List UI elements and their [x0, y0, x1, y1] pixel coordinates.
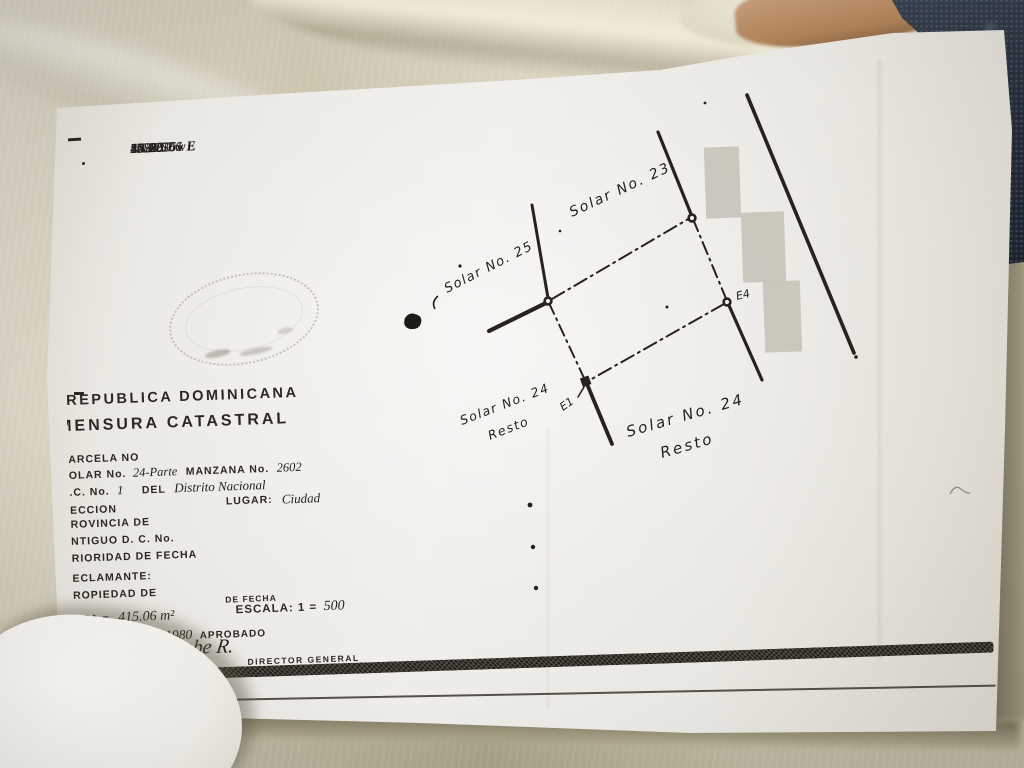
parcel-side-nw — [552, 218, 690, 299]
parcel-side-se — [590, 304, 724, 380]
label-resto-right: Resto — [658, 429, 716, 461]
escala-value: 500 — [323, 598, 345, 615]
lugar-label: LUGAR: — [226, 494, 273, 508]
redaction-block — [704, 146, 741, 218]
label-solar-24-right: Solar No. 24 — [624, 390, 746, 441]
dc-label: .C. No. — [69, 486, 110, 499]
label-e4: E4 — [735, 287, 752, 303]
faint-squiggle-mark — [950, 487, 970, 494]
label-solar-23: Solar No. 23 — [567, 160, 673, 221]
station-marker-e1 — [580, 376, 592, 388]
photo-of-survey-document: 1- N 24.56w 15.00 m N 63.06 E 28.22 " S … — [0, 0, 1024, 768]
parcel-side-ne — [693, 219, 727, 301]
dc-value: 1 — [117, 483, 124, 497]
redaction-block — [763, 280, 802, 352]
street-line-w-lower — [587, 384, 612, 444]
del-value: Distrito Nacional — [174, 477, 266, 495]
redaction-block — [741, 211, 786, 282]
lugar-value: Ciudad — [282, 490, 321, 507]
station-marker-e4 — [724, 299, 731, 306]
solar-value: 24-Parte — [133, 464, 178, 480]
solar-label: OLAR No. — [69, 468, 127, 482]
label-e1: E1 — [557, 395, 576, 414]
del-label: DEL — [142, 484, 166, 497]
e1-leader-line — [578, 387, 584, 397]
street-line-sw-stub — [489, 303, 546, 331]
street-line-ne-lower — [727, 301, 762, 380]
label-resto-left: Resto — [486, 413, 531, 442]
label-solar-25: Solar No. 25 — [442, 239, 536, 297]
field-seccion-lugar: ECCION LUGAR: Ciudad — [70, 499, 117, 519]
station-marker-left — [545, 298, 552, 305]
station-marker-top — [689, 215, 696, 222]
manzana-value: 2602 — [276, 460, 301, 475]
parcel-side-w — [549, 303, 584, 378]
seccion-label: ECCION — [70, 503, 117, 517]
small-pen-tick — [434, 296, 438, 309]
ink-blob — [404, 314, 421, 330]
